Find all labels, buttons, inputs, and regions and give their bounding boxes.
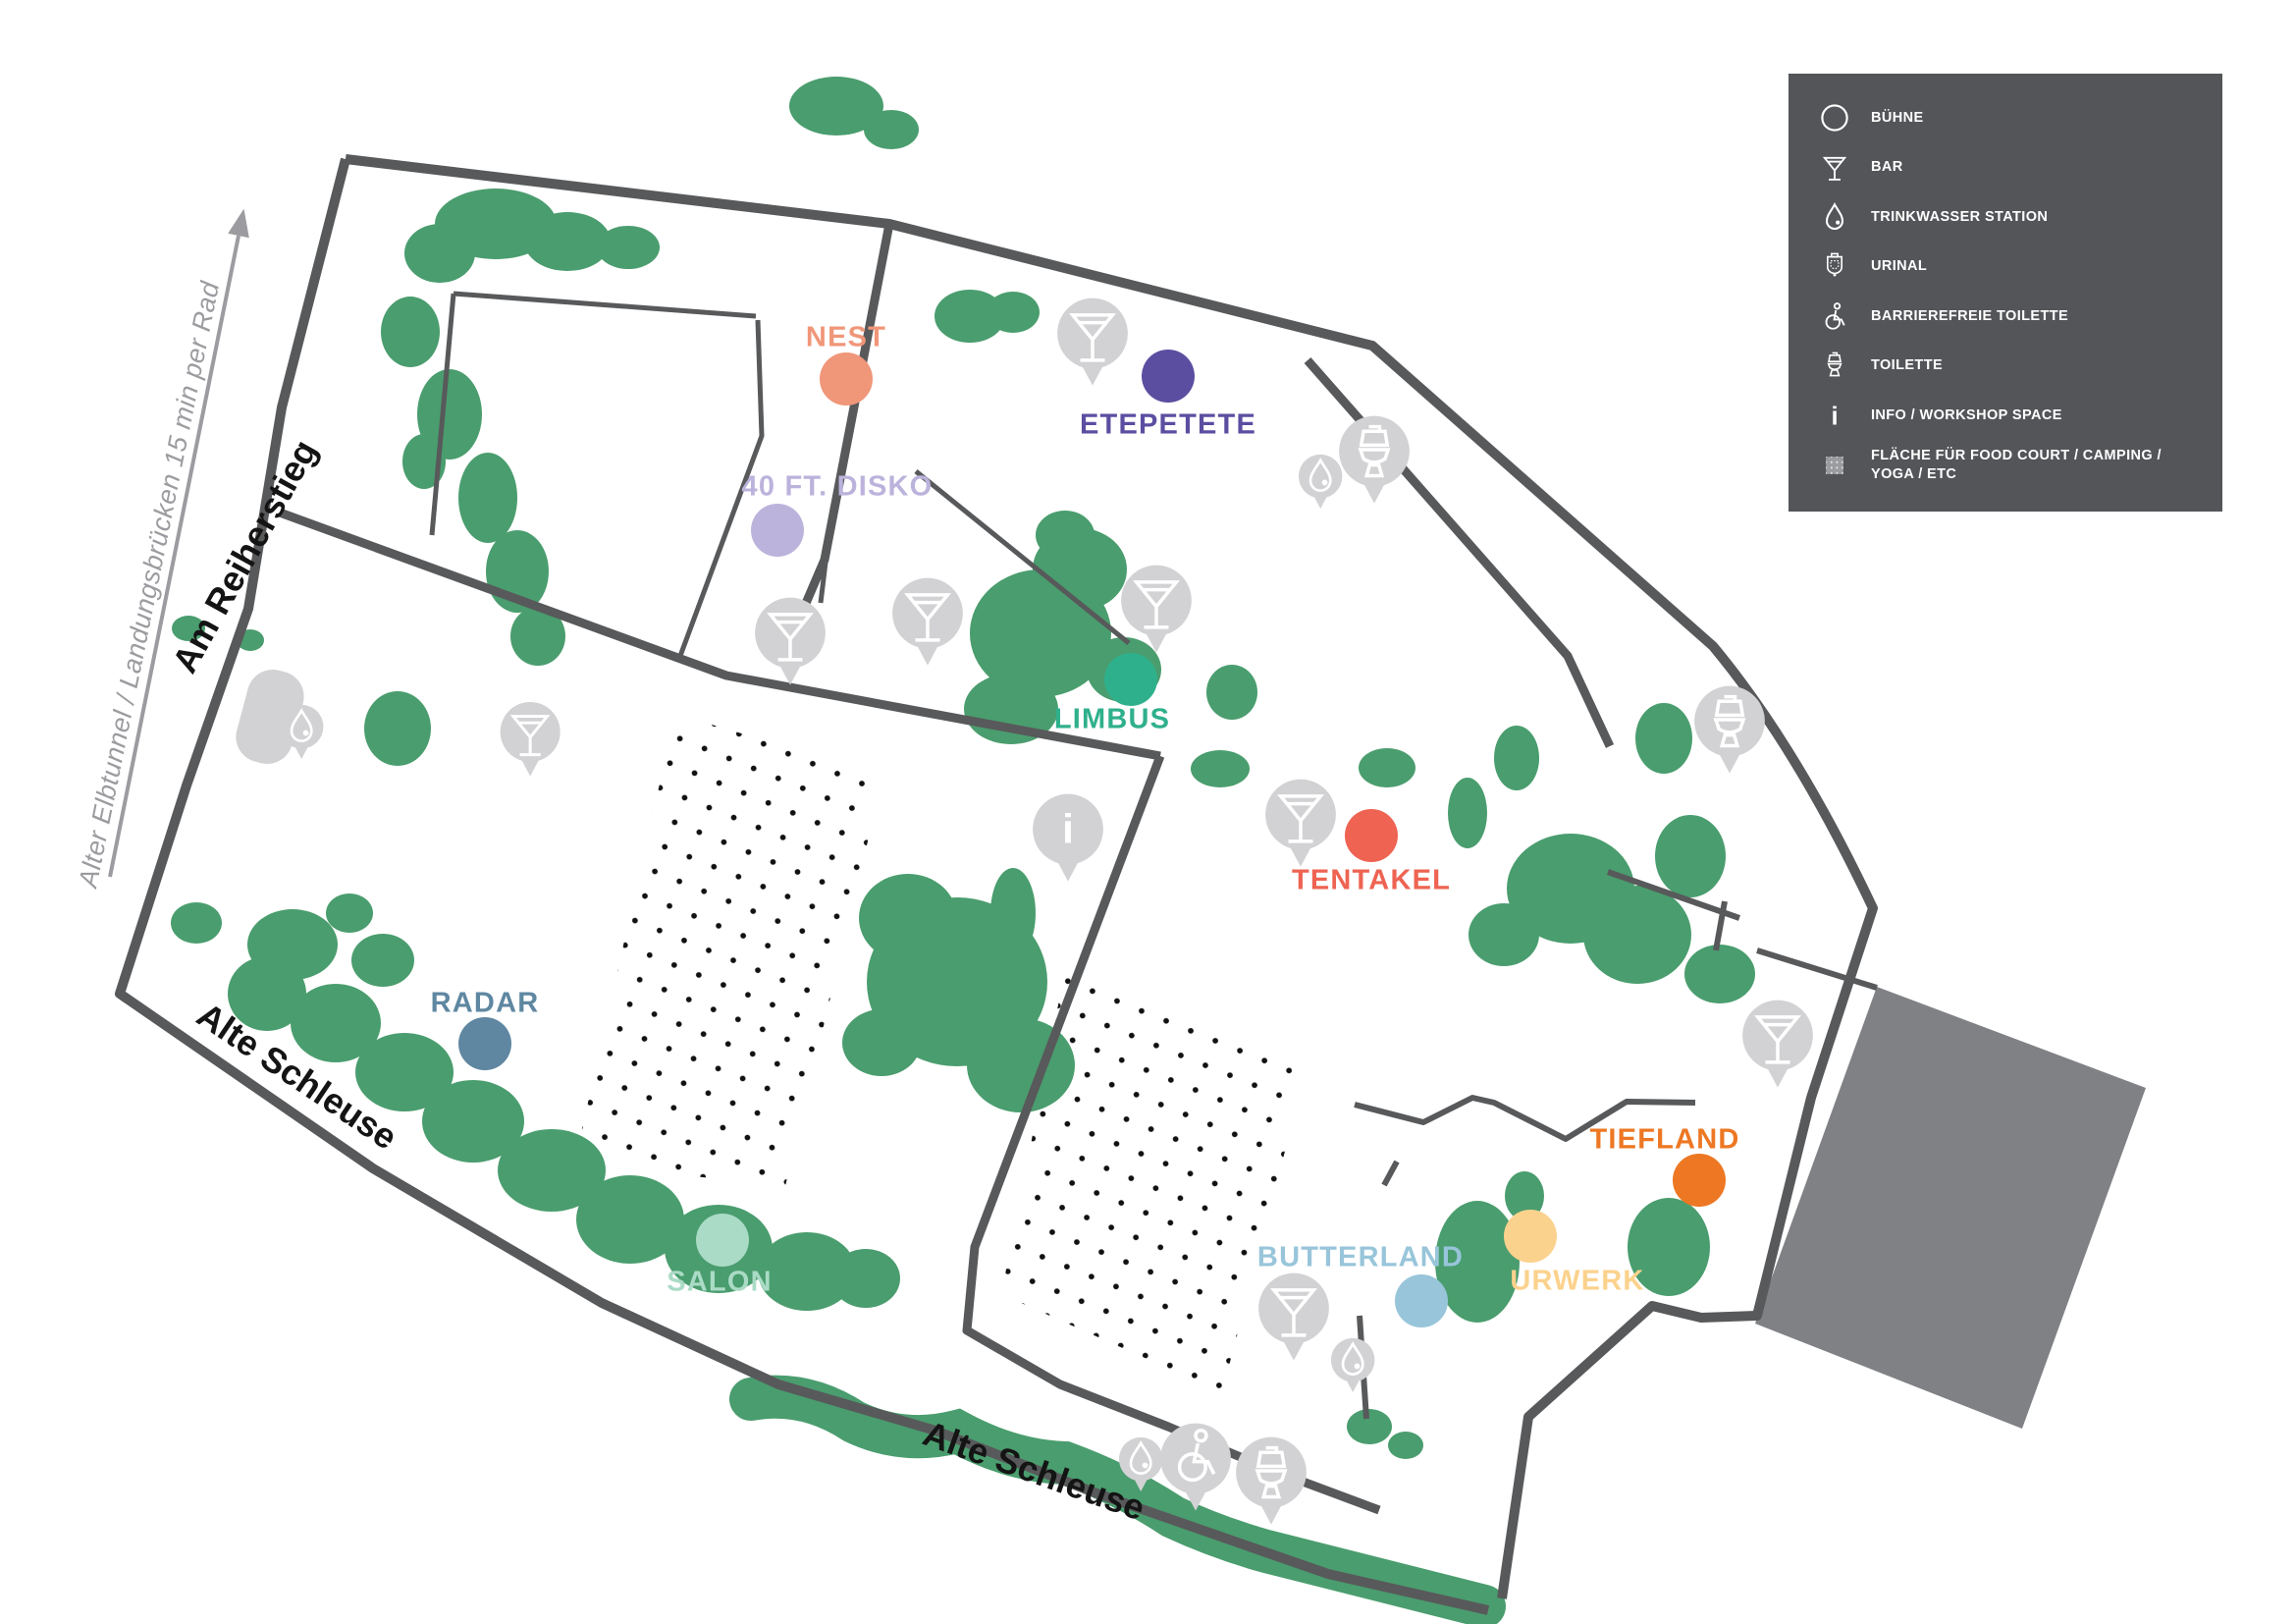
- toilet-pin-icon: [1336, 411, 1413, 507]
- wheelchair-pin-icon: [1157, 1419, 1234, 1514]
- legend-item-info: i INFO / WORKSHOP SPACE: [1814, 395, 2197, 436]
- stage-marker-salon: [696, 1214, 749, 1267]
- stage-marker-urwerk: [1504, 1210, 1557, 1263]
- legend-label: BÜHNE: [1871, 109, 1924, 128]
- info-icon: i: [1814, 395, 1855, 436]
- toilet-pin-icon: [1233, 1433, 1309, 1528]
- festival-map: Alter Elbtunnel / Landungsbrücken 15 min…: [0, 0, 2296, 1624]
- legend-label: TOILETTE: [1871, 356, 1943, 375]
- legend-item-urinal: URINAL: [1814, 246, 2197, 288]
- stage-label-salon: SALON: [667, 1267, 773, 1299]
- bar-pin-icon: [1262, 775, 1339, 870]
- stage-label-limbus: LIMBUS: [1054, 704, 1170, 736]
- legend-panel: BÜHNE BAR TRINKWASSER STATION: [1789, 74, 2222, 512]
- urinal-icon: [1814, 246, 1855, 288]
- legend-label: FLÄCHE FÜR FOOD COURT / CAMPING / YOGA /…: [1871, 447, 2197, 484]
- stage-label-40-ft-disko: 40 FT. DISKO: [742, 471, 934, 504]
- stage-label-tentakel: TENTAKEL: [1292, 865, 1451, 897]
- stage-label-butterland: BUTTERLAND: [1257, 1242, 1464, 1274]
- legend-item-toilette: TOILETTE: [1814, 346, 2197, 387]
- bar-pin-icon: [1054, 294, 1131, 389]
- legend-label: TRINKWASSER STATION: [1871, 208, 2048, 227]
- wheelchair-icon: [1814, 296, 1855, 337]
- stage-marker-etepetete: [1142, 350, 1195, 403]
- martini-icon: [1814, 147, 1855, 189]
- water-drop-icon: [1814, 196, 1855, 238]
- info-pin-icon: [1030, 789, 1106, 885]
- legend-label: BARRIEREFREIE TOILETTE: [1871, 307, 2068, 326]
- stage-label-urwerk: URWERK: [1510, 1266, 1644, 1298]
- stage-label-etepetete: ETEPETETE: [1080, 409, 1256, 442]
- legend-label: INFO / WORKSHOP SPACE: [1871, 406, 2062, 425]
- dotted-area-icon: [1814, 445, 1855, 486]
- stage-marker-tentakel: [1345, 809, 1398, 862]
- stage-marker-radar: [458, 1017, 511, 1070]
- legend-item-trinkwasser: TRINKWASSER STATION: [1814, 196, 2197, 238]
- legend-label: URINAL: [1871, 257, 1927, 276]
- toilet-pin-icon: [1691, 681, 1768, 777]
- water-pin-icon: [1329, 1335, 1376, 1394]
- svg-text:i: i: [1831, 404, 1838, 431]
- water-pin-icon: [278, 702, 325, 761]
- legend-item-barrierefrei: BARRIEREFREIE TOILETTE: [1814, 296, 2197, 337]
- stage-label-tiefland: TIEFLAND: [1590, 1124, 1740, 1157]
- stage-marker-butterland: [1395, 1274, 1448, 1327]
- stage-marker-40-ft-disko: [751, 504, 804, 557]
- legend-item-buehne: BÜHNE: [1814, 97, 2197, 138]
- stage-marker-nest: [820, 352, 873, 406]
- legend-item-bar: BAR: [1814, 147, 2197, 189]
- toilet-icon: [1814, 346, 1855, 387]
- bar-pin-icon: [1118, 561, 1195, 656]
- bar-pin-icon: [752, 593, 828, 688]
- stage-label-radar: RADAR: [431, 988, 540, 1020]
- bar-pin-icon: [1255, 1269, 1332, 1364]
- stage-marker-tiefland: [1673, 1154, 1726, 1207]
- legend-item-flaeche: FLÄCHE FÜR FOOD COURT / CAMPING / YOGA /…: [1814, 445, 2197, 486]
- legend-label: BAR: [1871, 158, 1903, 177]
- bar-pin-icon: [1739, 996, 1816, 1091]
- bar-pin-icon: [498, 698, 562, 779]
- stage-circle-icon: [1814, 97, 1855, 138]
- stage-label-nest: NEST: [806, 322, 886, 354]
- bar-pin-icon: [889, 573, 966, 669]
- stage-marker-limbus: [1104, 653, 1157, 706]
